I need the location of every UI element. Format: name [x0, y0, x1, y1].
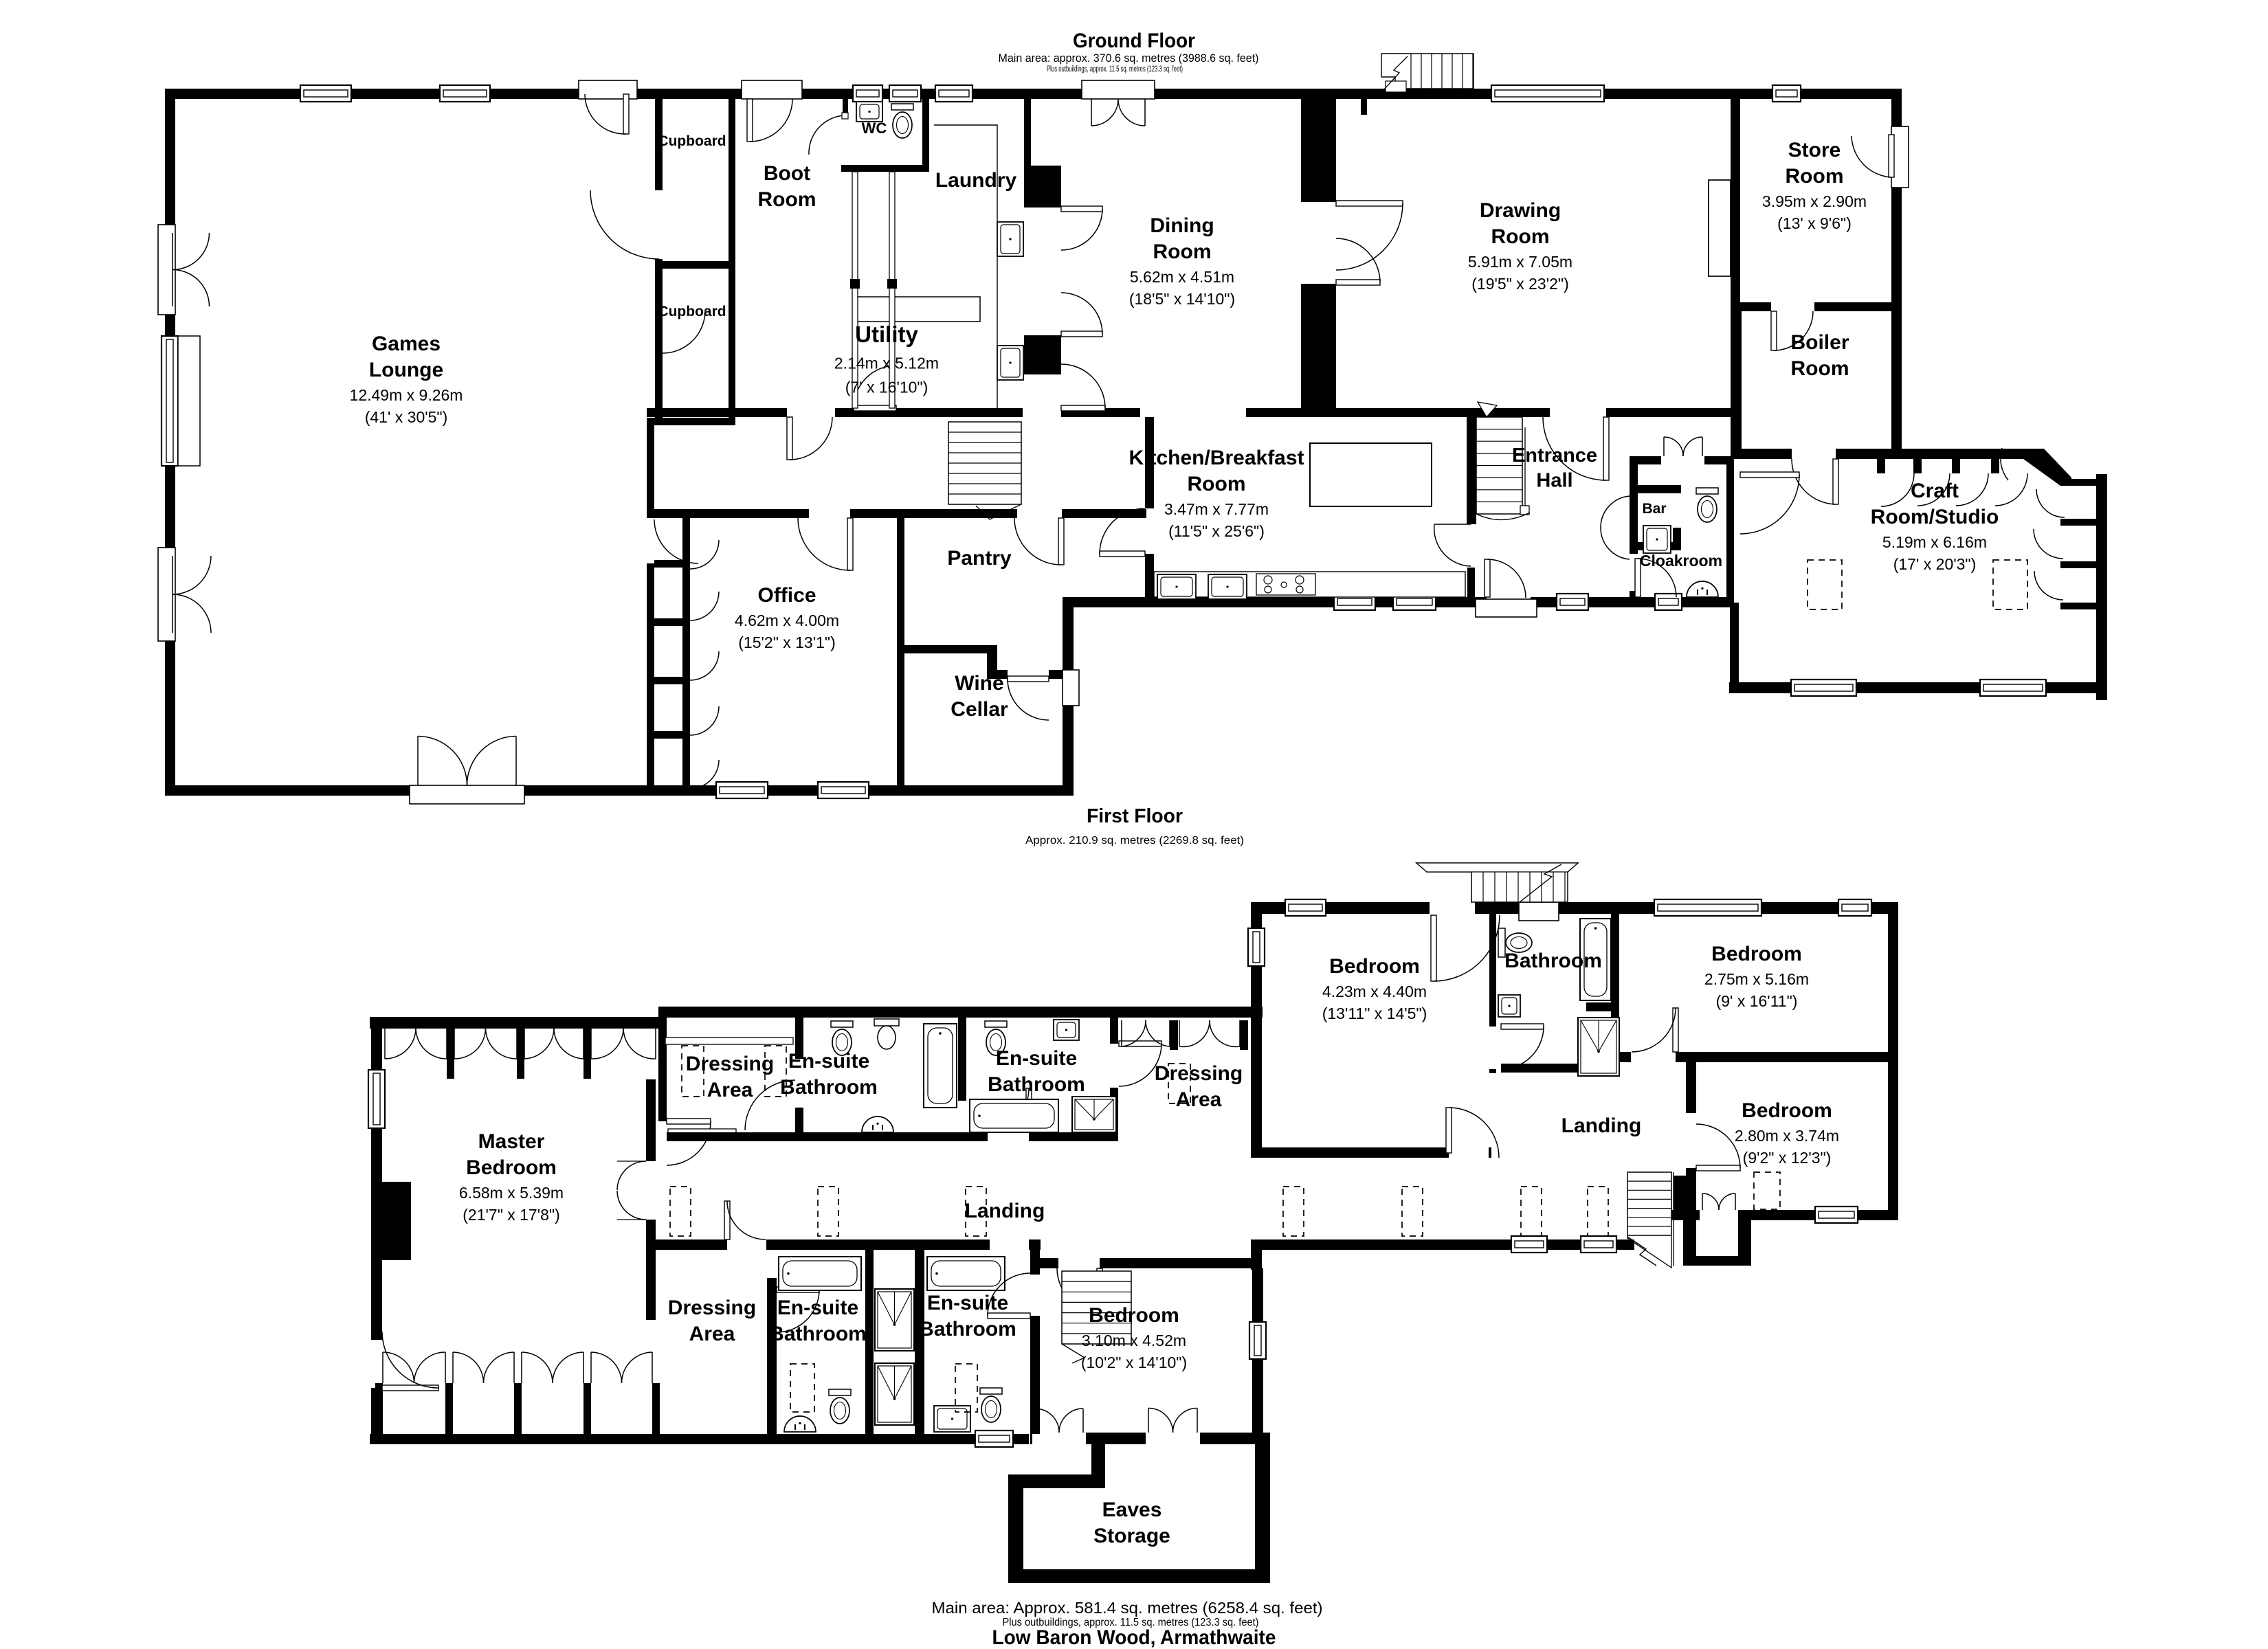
svg-text:Cupboard: Cupboard — [658, 304, 726, 319]
svg-text:(11'5" x 25'6"): (11'5" x 25'6") — [1168, 522, 1265, 540]
svg-text:Cellar: Cellar — [950, 698, 1008, 721]
svg-text:Area: Area — [689, 1323, 735, 1345]
svg-text:Cloakroom: Cloakroom — [1640, 552, 1722, 570]
svg-text:Room: Room — [1786, 165, 1844, 188]
svg-text:(9' x 16'11"): (9' x 16'11") — [1716, 992, 1798, 1010]
svg-text:Room: Room — [1791, 357, 1849, 380]
svg-text:(15'2" x 13'1"): (15'2" x 13'1") — [738, 633, 835, 651]
svg-text:Low Baron Wood, Armathwaite: Low Baron Wood, Armathwaite — [992, 1626, 1276, 1649]
svg-text:Dressing: Dressing — [686, 1053, 774, 1075]
svg-text:Bathroom: Bathroom — [769, 1323, 867, 1345]
svg-text:Room/Studio: Room/Studio — [1871, 506, 1999, 528]
svg-text:Main area: Approx. 581.4 sq. m: Main area: Approx. 581.4 sq. metres (625… — [932, 1599, 1323, 1617]
svg-text:6.58m x 5.39m: 6.58m x 5.39m — [459, 1184, 564, 1202]
svg-text:Plus outbuildings, approx. 11.: Plus outbuildings, approx. 11.5 sq. metr… — [1047, 65, 1183, 74]
svg-text:First Floor: First Floor — [1087, 805, 1183, 827]
svg-text:3.10m x 4.52m: 3.10m x 4.52m — [1082, 1332, 1186, 1349]
svg-text:Pantry: Pantry — [947, 547, 1012, 570]
svg-text:(19'5" x 23'2"): (19'5" x 23'2") — [1471, 275, 1568, 293]
svg-text:Room: Room — [1188, 473, 1246, 495]
svg-text:Landing: Landing — [965, 1200, 1045, 1222]
svg-text:(13' x 9'6"): (13' x 9'6") — [1777, 214, 1852, 232]
svg-text:En-suite: En-suite — [996, 1047, 1077, 1070]
svg-text:12.49m x 9.26m: 12.49m x 9.26m — [350, 386, 463, 404]
svg-text:Bar: Bar — [1642, 501, 1666, 517]
svg-text:(21'7" x 17'8"): (21'7" x 17'8") — [463, 1206, 559, 1224]
svg-text:(13'11" x 14'5"): (13'11" x 14'5") — [1322, 1005, 1427, 1022]
svg-text:Bedroom: Bedroom — [1742, 1099, 1832, 1122]
svg-text:Bedroom: Bedroom — [1089, 1304, 1179, 1327]
svg-text:Lounge: Lounge — [369, 359, 443, 381]
svg-text:(41' x 30'5"): (41' x 30'5") — [365, 408, 448, 426]
svg-text:(18'5" x 14'10"): (18'5" x 14'10") — [1129, 290, 1235, 308]
svg-text:WC: WC — [862, 120, 887, 137]
svg-text:En-suite: En-suite — [777, 1297, 858, 1319]
svg-text:3.47m x 7.77m: 3.47m x 7.77m — [1164, 500, 1269, 518]
svg-text:2.14m x 5.12m: 2.14m x 5.12m — [834, 355, 939, 372]
svg-text:4.23m x 4.40m: 4.23m x 4.40m — [1322, 983, 1427, 1000]
svg-text:Bathroom: Bathroom — [780, 1076, 878, 1099]
svg-text:En-suite: En-suite — [788, 1050, 869, 1073]
svg-text:Boot: Boot — [764, 162, 810, 185]
svg-text:2.75m x 5.16m: 2.75m x 5.16m — [1704, 970, 1809, 988]
svg-text:Store: Store — [1788, 139, 1841, 161]
svg-text:Entrance: Entrance — [1512, 445, 1597, 467]
svg-text:Bathroom: Bathroom — [1504, 950, 1602, 972]
svg-text:Bedroom: Bedroom — [1711, 943, 1802, 965]
svg-text:Bathroom: Bathroom — [919, 1318, 1016, 1340]
svg-text:Dressing: Dressing — [668, 1297, 756, 1319]
svg-text:Cupboard: Cupboard — [658, 133, 726, 149]
svg-text:Drawing: Drawing — [1480, 199, 1561, 222]
svg-text:Bedroom: Bedroom — [466, 1156, 557, 1179]
svg-text:5.91m x 7.05m: 5.91m x 7.05m — [1468, 253, 1572, 271]
svg-text:Dressing: Dressing — [1155, 1062, 1243, 1085]
svg-text:Area: Area — [707, 1079, 753, 1101]
svg-text:Approx. 210.9 sq. metres (2269: Approx. 210.9 sq. metres (2269.8 sq. fee… — [1025, 835, 1244, 846]
svg-text:Room: Room — [1491, 225, 1550, 248]
svg-text:Kitchen/Breakfast: Kitchen/Breakfast — [1129, 447, 1304, 469]
svg-text:5.19m x 6.16m: 5.19m x 6.16m — [1882, 533, 1987, 551]
svg-text:Eaves: Eaves — [1102, 1499, 1162, 1521]
svg-text:Utility: Utility — [855, 322, 918, 347]
svg-text:(17' x 20'3"): (17' x 20'3") — [1893, 555, 1977, 573]
svg-text:Laundry: Laundry — [935, 169, 1017, 192]
svg-text:(10'2" x 14'10"): (10'2" x 14'10") — [1081, 1354, 1187, 1371]
svg-text:(9'2" x 12'3"): (9'2" x 12'3") — [1743, 1149, 1832, 1167]
svg-text:Area: Area — [1176, 1088, 1222, 1111]
svg-text:3.95m x 2.90m: 3.95m x 2.90m — [1762, 192, 1867, 210]
svg-text:Landing: Landing — [1561, 1114, 1642, 1137]
svg-text:Wine: Wine — [955, 672, 1003, 695]
svg-text:2.80m x 3.74m: 2.80m x 3.74m — [1735, 1127, 1839, 1145]
svg-text:Hall: Hall — [1536, 470, 1572, 492]
svg-text:En-suite: En-suite — [927, 1292, 1008, 1314]
svg-text:Bathroom: Bathroom — [988, 1073, 1085, 1096]
svg-text:Main area: approx. 370.6 sq. m: Main area: approx. 370.6 sq. metres (398… — [999, 52, 1259, 65]
svg-text:(7' x 16'10"): (7' x 16'10") — [845, 379, 929, 396]
svg-text:Games: Games — [372, 333, 441, 355]
svg-text:Office: Office — [757, 584, 816, 607]
svg-text:5.62m x 4.51m: 5.62m x 4.51m — [1130, 268, 1234, 286]
svg-text:Boiler: Boiler — [1790, 331, 1849, 354]
svg-text:Craft: Craft — [1911, 480, 1959, 502]
svg-text:Storage: Storage — [1093, 1525, 1170, 1547]
svg-text:Room: Room — [1153, 240, 1212, 263]
svg-text:Room: Room — [758, 188, 816, 211]
svg-text:Master: Master — [478, 1130, 545, 1153]
svg-text:Ground Floor: Ground Floor — [1073, 30, 1195, 52]
svg-text:4.62m x 4.00m: 4.62m x 4.00m — [735, 612, 839, 629]
svg-text:Bedroom: Bedroom — [1329, 955, 1420, 978]
svg-text:Dining: Dining — [1150, 214, 1214, 237]
